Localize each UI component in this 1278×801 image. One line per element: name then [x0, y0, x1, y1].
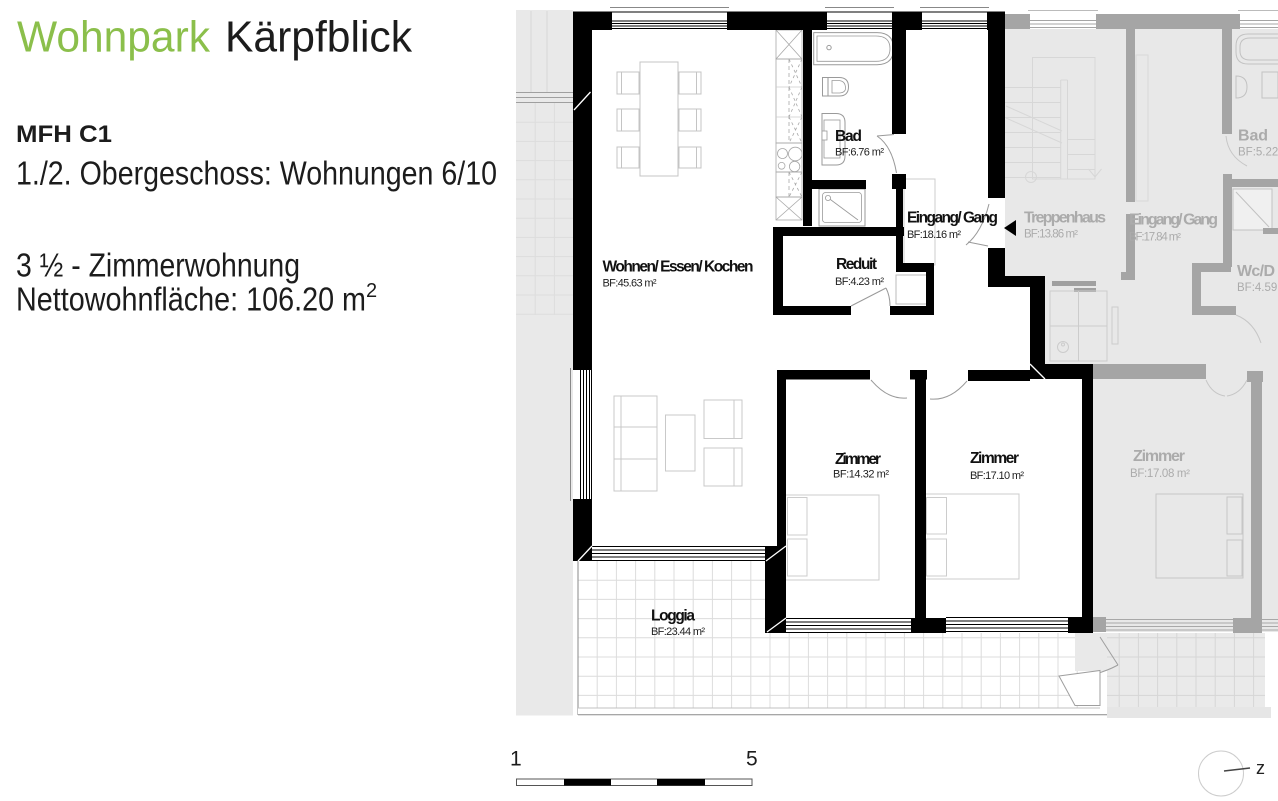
svg-text:Kärpfblick: Kärpfblick	[225, 13, 413, 62]
svg-text:BF:17.10 m²: BF:17.10 m²	[970, 470, 1024, 482]
svg-text:Eingang/ Gang: Eingang/ Gang	[907, 210, 998, 227]
svg-text:Bad: Bad	[1238, 128, 1268, 145]
svg-text:Eingang/ Gang: Eingang/ Gang	[1129, 212, 1218, 229]
svg-text:BF:17.84 m²: BF:17.84 m²	[1129, 232, 1181, 244]
svg-text:z: z	[1256, 758, 1265, 778]
svg-text:BF:4.59 m²: BF:4.59 m²	[1237, 282, 1278, 294]
svg-text:3 ½ - Zimmerwohnung: 3 ½ - Zimmerwohnung	[16, 247, 300, 284]
svg-text:BF:5.22 m²: BF:5.22 m²	[1238, 147, 1278, 159]
svg-text:Zimmer: Zimmer	[970, 450, 1019, 467]
svg-text:5: 5	[746, 748, 758, 771]
svg-text:Reduit: Reduit	[836, 256, 877, 273]
svg-text:Treppenhaus: Treppenhaus	[1024, 210, 1106, 227]
svg-text:BF:17.08 m²: BF:17.08 m²	[1130, 468, 1190, 480]
svg-text:Wohnpark: Wohnpark	[17, 13, 211, 62]
svg-text:1./2. Obergeschoss: Wohnungen: 1./2. Obergeschoss: Wohnungen 6/10	[16, 155, 497, 192]
svg-text:Zimmer: Zimmer	[1133, 448, 1185, 465]
svg-text:BF:23.44 m²: BF:23.44 m²	[651, 626, 705, 638]
svg-text:BF:6.76 m²: BF:6.76 m²	[835, 147, 884, 159]
svg-text:Loggia: Loggia	[651, 608, 695, 625]
svg-text:MFH C1: MFH C1	[16, 121, 112, 148]
svg-text:BF:45.63 m²: BF:45.63 m²	[603, 278, 657, 290]
svg-text:Wohnen/ Essen/ Kochen: Wohnen/ Essen/ Kochen	[603, 259, 754, 276]
svg-text:2: 2	[366, 280, 377, 302]
svg-text:BF:14.32 m²: BF:14.32 m²	[833, 469, 889, 481]
svg-text:Bad: Bad	[835, 128, 862, 145]
svg-text:Nettowohnfläche: 106.20 m: Nettowohnfläche: 106.20 m	[16, 281, 366, 318]
svg-text:Zimmer: Zimmer	[835, 451, 881, 468]
svg-text:1: 1	[510, 748, 522, 771]
svg-text:BF:18.16 m²: BF:18.16 m²	[907, 229, 961, 241]
svg-text:Wc/D: Wc/D	[1237, 263, 1275, 280]
svg-text:BF:13.86 m²: BF:13.86 m²	[1024, 229, 1078, 241]
svg-text:BF:4.23 m²: BF:4.23 m²	[835, 276, 884, 288]
